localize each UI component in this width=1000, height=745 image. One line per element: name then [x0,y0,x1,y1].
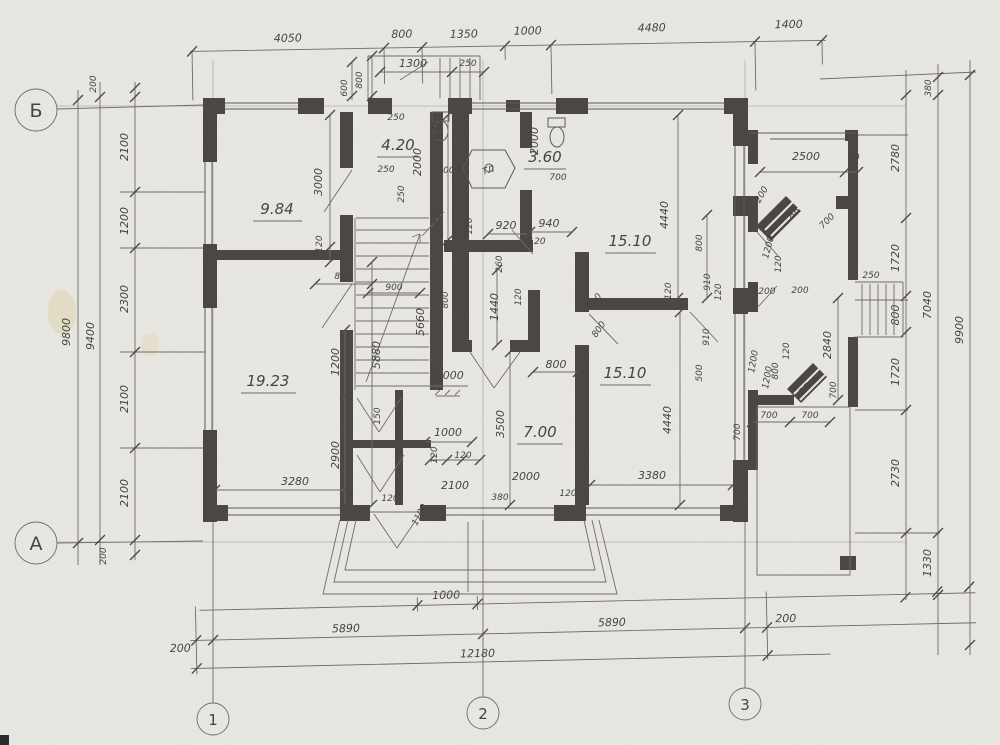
dim-label: 3500 [494,410,507,438]
dim-label: 120 [664,282,674,299]
dim-label: 120 [465,217,475,234]
dim-label: 1440 [488,293,501,321]
dim-label: 9400 [84,322,97,350]
room-area-label: 9.84 [260,200,293,218]
dim-label: 1350 [450,27,478,40]
room-area-label: 7.00 [523,423,556,441]
dim-label: 5880 [370,341,383,369]
axis-number: 2 [478,705,488,723]
dim-label: 120 [381,494,398,504]
axis-letter: А [30,533,43,555]
dim-label: 5890 [598,616,626,630]
dim-label: 150 [373,407,383,424]
dim-label: 120 [430,446,440,463]
dim-label: 2300 [118,285,131,313]
dim-label: 1000 [432,588,460,602]
dim-label: 250 [377,165,394,175]
dim-label: 250 [397,185,407,202]
dim-label: 800 [355,71,365,88]
dim-label: 9800 [60,318,73,346]
dim-label: 500 [695,364,705,381]
dim-label: 2100 [441,479,469,492]
dim-label: 910 [703,273,713,290]
dim-label: 2900 [329,441,342,469]
dim-label: 700 [829,381,839,398]
dim-label: 1400 [775,18,803,31]
dim-label: 700 [733,423,743,440]
dim-label: 700 [549,173,566,183]
dim-label: 200 [775,612,796,625]
dim-label: 120 [559,489,576,499]
dim-label: 4440 [658,201,671,229]
floor-plan-svg: 4050 800 1350 1000 4480 1400 1300 250 80… [0,0,1000,745]
dim-label: 800 [334,272,351,282]
dim-label: 600 [340,79,350,96]
dim-label: 5660 [414,308,427,336]
dim-label: 2100 [118,479,131,507]
dim-label: 1330 [921,549,934,577]
dim-label: 800 [889,305,902,326]
dim-label: 2000 [528,127,541,155]
dim-label: 1000 [514,24,542,37]
dim-label: 700 [437,166,454,176]
dim-label: 920 [496,219,517,232]
dim-label: 120 [514,288,524,305]
dim-label: 2000 [512,470,540,483]
axis-letter: Б [29,100,42,122]
room-area-label: 15.10 [609,232,652,250]
dim-label: 1200 [329,348,342,376]
axis-number: 3 [740,696,750,714]
room-area-label: 4.20 [381,136,414,154]
dim-label: 910 [702,328,712,345]
dim-label: 380 [491,493,508,503]
dim-label: 260 [495,255,505,272]
dim-label: 250 [862,271,879,281]
dim-label: 940 [539,217,560,230]
dim-label: 120 [315,235,325,252]
dim-label: 4480 [638,21,666,34]
dim-label: 200 [170,642,191,655]
dim-label: 700 [760,411,777,421]
dim-label: 120 [433,207,443,224]
dim-label: 2780 [889,144,902,172]
dim-label: 4050 [274,31,302,44]
room-area-label: 19.23 [247,372,290,390]
dim-label: 2730 [889,459,902,487]
dim-label: 800 [546,358,567,371]
scanned-floor-plan: 4050 800 1350 1000 4480 1400 1300 250 80… [0,0,1000,745]
dim-label: 120 [714,283,724,300]
dim-label: 900 [385,283,402,293]
dim-label: 1720 [889,358,902,386]
dim-label: 800 [441,291,451,308]
scan-artifact [0,735,9,745]
dim-label: 800 [695,234,705,251]
dim-label: 120 [528,237,545,247]
axis-number: 1 [208,711,218,729]
dim-label: 120 [774,255,784,272]
dim-label: 200 [791,286,808,296]
dim-label: 2000 [411,148,424,176]
dim-label: 1300 [399,57,427,70]
dim-label: 800 [771,362,781,379]
dim-label: 50 [848,153,860,163]
dim-label: 120 [782,342,792,359]
dim-label: 250 [387,113,404,123]
dim-label: 7040 [921,291,934,319]
dim-label: 800 [391,28,412,41]
dim-label: 380 [924,79,934,96]
dim-label: 1200 [753,287,776,297]
dim-label: 2500 [792,150,820,163]
dim-label: 120 [454,451,471,461]
dim-label: 2840 [821,331,834,359]
room-area-label: 15.10 [604,364,647,382]
dim-label: 1200 [118,207,131,235]
dim-label: 2100 [118,385,131,413]
dim-label: 4440 [661,406,674,434]
dim-label: 1720 [889,244,902,272]
dim-label: 200 [99,547,109,564]
dim-label: 9900 [953,316,966,344]
dim-label: 2850 [432,119,445,147]
dim-label: 3280 [281,475,309,488]
dim-label: 250 [459,59,476,69]
dim-label: 3380 [638,469,666,482]
dim-label: 5890 [332,622,360,636]
dim-label: 200 [89,75,99,92]
dim-label: 700 [801,411,818,421]
dim-label: 3000 [312,168,325,196]
paper-stain-2 [141,333,159,357]
level-mark-value: 0.000 [432,369,464,382]
dim-label: 2100 [118,133,131,161]
dim-label: 1000 [434,426,462,439]
dim-label: 12180 [460,647,495,661]
